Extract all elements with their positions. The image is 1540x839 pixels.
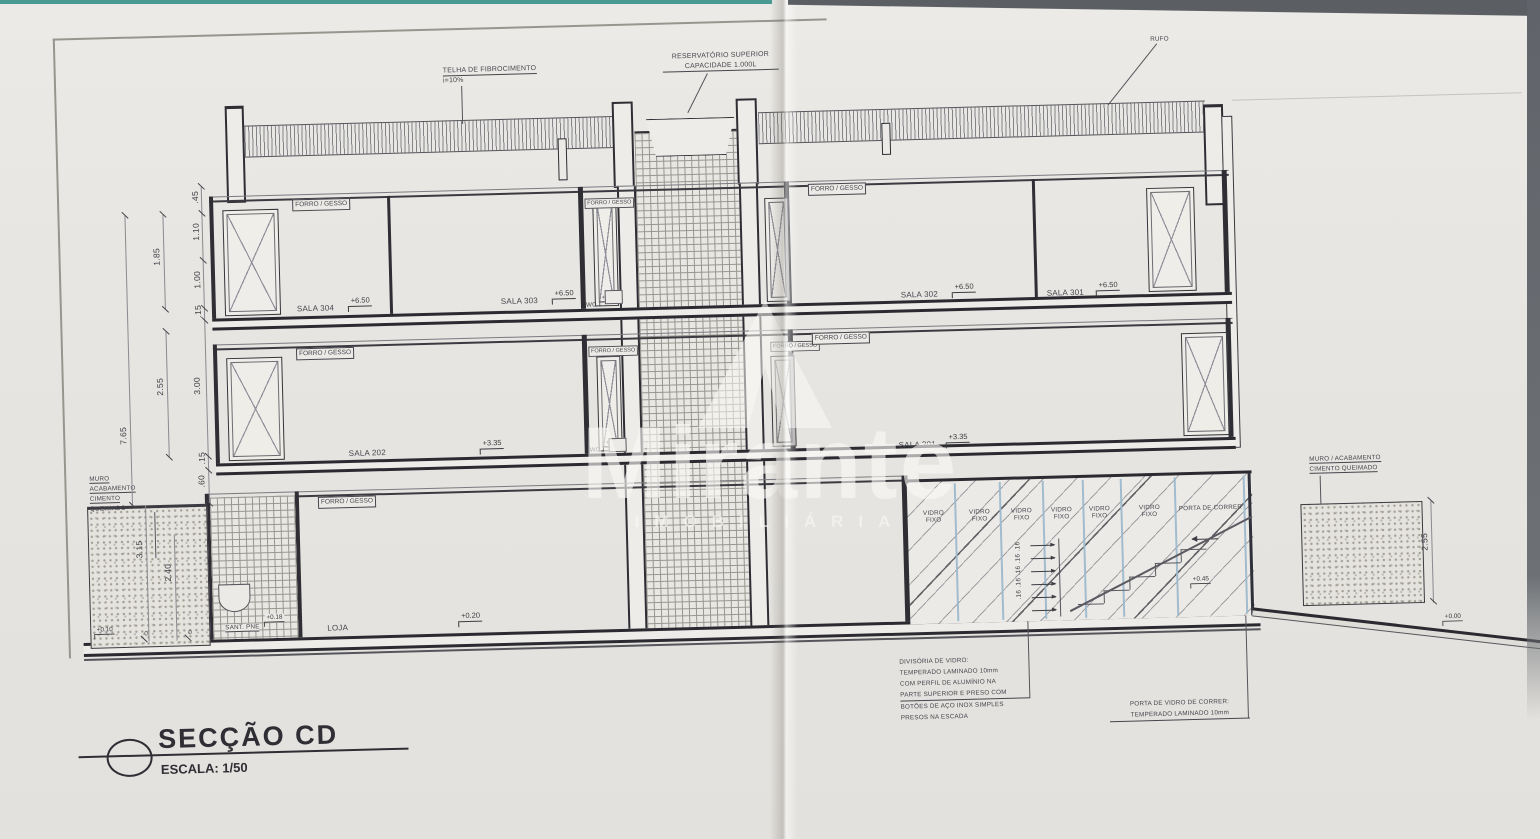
riser-arrow — [1031, 571, 1055, 573]
level-sala303: +6.50 — [553, 289, 576, 300]
forro-tag-f3-left: FORRO / GESSO — [292, 198, 350, 212]
muro-left-label-2: ACABAMENTO — [89, 485, 135, 494]
dim-110: 1.10 — [191, 223, 201, 241]
parapet-left — [225, 106, 247, 203]
forro-tag-ground-loja: FORRO / GESSO — [318, 495, 376, 509]
frame-left-line — [53, 39, 71, 659]
paper-fold-crease — [770, 0, 798, 839]
scanned-blueprint-sheet: TELHA DE FIBROCIMENTO i=10% RESERVATÓRIO… — [0, 0, 1540, 839]
section-marker-circle — [106, 738, 153, 777]
riser-guide-line — [1058, 538, 1061, 616]
wc-fixture-f3 — [605, 290, 623, 304]
level-muro-left: +0.10 — [95, 626, 115, 635]
dim-185: 1.85 — [151, 248, 161, 266]
frame-faint-right — [1232, 92, 1522, 101]
paper-edge-teal — [0, 0, 772, 4]
vidro-fixo-label: VIDROFIXO — [1079, 505, 1119, 520]
level-loja: +0.20 — [459, 612, 482, 623]
fixo-word: FIXO — [1092, 512, 1108, 519]
riser-arrow — [1031, 584, 1055, 586]
sidewalk-sloped — [1252, 607, 1540, 650]
room-label-sala303: SALA 303 — [501, 296, 538, 306]
window-f2-right — [1181, 332, 1230, 436]
level-sala302: +6.50 — [952, 283, 975, 294]
paper-edge-right — [1527, 0, 1540, 720]
note-line: TEMPERADO LAMINADO 10mm — [1110, 707, 1250, 723]
outer-wall-left-f3 — [209, 197, 216, 319]
dim-100: 1.00 — [192, 271, 202, 289]
glass-mullion — [1174, 477, 1180, 615]
muro-dim-315: 3.15 — [134, 540, 144, 558]
water-tank — [644, 117, 737, 157]
muro-zero-b: 0 — [188, 629, 192, 636]
room-label-loja: LOJA — [327, 623, 348, 633]
window-glazing — [1185, 336, 1225, 432]
muro-right-dim-line — [1430, 501, 1434, 603]
note-line: PRESOS NA ESCADA — [901, 709, 1031, 723]
dim-045: .45 — [190, 191, 200, 204]
forro-tag-f2-left: FORRO / GESSO — [296, 347, 354, 361]
rufo-leader — [1108, 43, 1157, 105]
sant-pne-room — [210, 495, 299, 639]
roof-tile-label: TELHA DE FIBROCIMENTO — [443, 64, 537, 76]
section-scale: ESCALA: 1/50 — [161, 760, 248, 777]
level-sant-pne: +0.18 — [265, 614, 285, 623]
dim-255: 2.55 — [155, 378, 165, 396]
window-sala301 — [1146, 187, 1197, 292]
partition-sala302-301 — [1032, 179, 1038, 297]
roof-slope-label: i=10% — [443, 76, 464, 86]
shaft-column-left-top — [612, 101, 635, 188]
muro-right-label-1: MURO / ACABAMENTO — [1309, 454, 1381, 464]
dim-chain-outer — [124, 216, 133, 506]
room-label-sala302: SALA 302 — [901, 290, 938, 300]
window-glazing — [1150, 191, 1192, 288]
muro-left-label-4: QUEIMADO — [90, 505, 126, 513]
window-glazing — [226, 213, 277, 312]
window-glazing — [596, 206, 615, 302]
room-label-sala304: SALA 304 — [297, 303, 334, 313]
level-stair-landing: +0.45 — [1191, 575, 1211, 584]
partition-sala304-303 — [387, 196, 393, 314]
dim-chain-mid-a — [162, 215, 165, 310]
riser-arrow — [1030, 545, 1054, 547]
forro-tag-f2-wc: FORRO / GESSO — [588, 345, 638, 356]
level-sala301: +6.50 — [1096, 281, 1119, 292]
dim-765: 7.65 — [118, 427, 128, 445]
muro-right-block — [1300, 501, 1425, 606]
forro-tag-f3-right: FORRO / GESSO — [808, 182, 866, 196]
roof-tile-leader — [461, 86, 463, 124]
glass-right-edge — [1248, 473, 1255, 615]
sant-pne-label: SANT. PNE — [225, 623, 260, 632]
note-porta: PORTA DE VIDRO DE CORRER: TEMPERADO LAMI… — [1109, 696, 1250, 723]
outer-wall-left-f2 — [213, 344, 220, 463]
reservoir-leader — [687, 73, 708, 113]
fixo-word: FIXO — [1142, 511, 1158, 518]
window-glazing — [230, 361, 280, 457]
reservoir-label-2: CAPACIDADE 1.000L — [663, 60, 779, 73]
window-sala304 — [222, 209, 281, 316]
muro-right-label-2: CIMENTO QUEIMADO — [1309, 464, 1377, 474]
room-label-sala202: SALA 202 — [349, 448, 386, 458]
glass-mullion — [1082, 480, 1088, 618]
riser-arrow — [1032, 610, 1056, 612]
dim-chain-mid-b — [165, 332, 169, 458]
level-sidewalk: +0.00 — [1443, 613, 1463, 622]
glass-mullion — [1120, 479, 1126, 617]
riser-dims: .16 .16 .16 .16 .16 — [1014, 541, 1023, 599]
dim-015-b: .15 — [197, 452, 207, 465]
forro-tag-f3-wc: FORRO / GESSO — [584, 197, 634, 208]
muro-left-label-1: MURO — [89, 475, 109, 484]
vidro-fixo-label: VIDROFIXO — [1129, 504, 1169, 519]
stair-stringer — [1070, 516, 1253, 612]
muro-dim-240: 2.40 — [163, 564, 173, 582]
room-label-wc-f3: WC — [586, 301, 597, 308]
roof-vent-right — [881, 123, 891, 155]
riser-arrow — [1031, 558, 1055, 560]
roof-vent-left — [558, 138, 568, 180]
muro-left-label-3: CIMENTO — [90, 495, 121, 504]
roof-corrugated-right — [758, 101, 1206, 145]
note-divisoria: DIVISÓRIA DE VIDRO: TEMPERADO LAMINADO 1… — [899, 653, 1031, 723]
forro-tag-f2-right: FORRO / GESSO — [812, 331, 870, 345]
frame-top-line — [53, 18, 827, 40]
muro-zero-a: 0 — [144, 630, 148, 637]
shaft-column-right-top — [736, 98, 759, 185]
dim-060: .60 — [196, 475, 206, 488]
riser-arrow — [1032, 597, 1056, 599]
porta-correr-label: PORTA DE CORRER — [1175, 504, 1245, 513]
section-title: SECÇÃO CD — [158, 719, 339, 755]
level-sala304: +6.50 — [349, 296, 372, 307]
muro-right-dim-255: 2.55 — [1419, 533, 1429, 551]
room-label-sala301: SALA 301 — [1047, 288, 1084, 298]
dim-015-a: .15 — [193, 305, 203, 318]
dim-300: 3.00 — [192, 377, 202, 395]
rufo-label: RUFO — [1150, 35, 1169, 42]
window-f2-left — [226, 357, 285, 461]
